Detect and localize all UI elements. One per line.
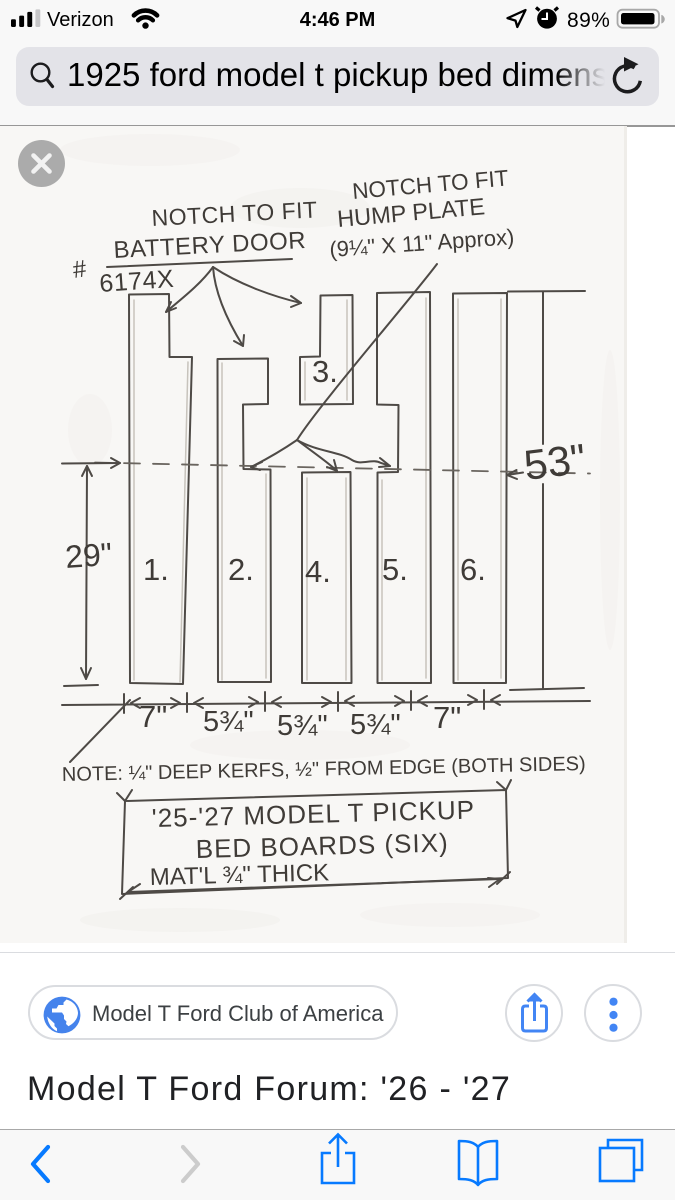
svg-text:3.: 3. bbox=[312, 354, 338, 389]
svg-text:29": 29" bbox=[64, 536, 113, 575]
svg-text:5¾": 5¾" bbox=[277, 710, 328, 742]
svg-text:5.: 5. bbox=[382, 552, 408, 587]
svg-text:53": 53" bbox=[521, 435, 588, 489]
svg-text:1.: 1. bbox=[143, 552, 169, 587]
svg-text:7": 7" bbox=[433, 700, 461, 735]
svg-text:MAT'L ¾" THICK: MAT'L ¾" THICK bbox=[149, 859, 329, 891]
svg-text:7": 7" bbox=[139, 699, 167, 734]
svg-text:6.: 6. bbox=[460, 552, 486, 587]
svg-text:5¾": 5¾" bbox=[203, 706, 254, 738]
svg-text:4.: 4. bbox=[305, 554, 331, 589]
svg-text:6174X: 6174X bbox=[98, 265, 175, 298]
svg-text:5¾": 5¾" bbox=[350, 709, 401, 741]
svg-text:2.: 2. bbox=[228, 552, 254, 587]
